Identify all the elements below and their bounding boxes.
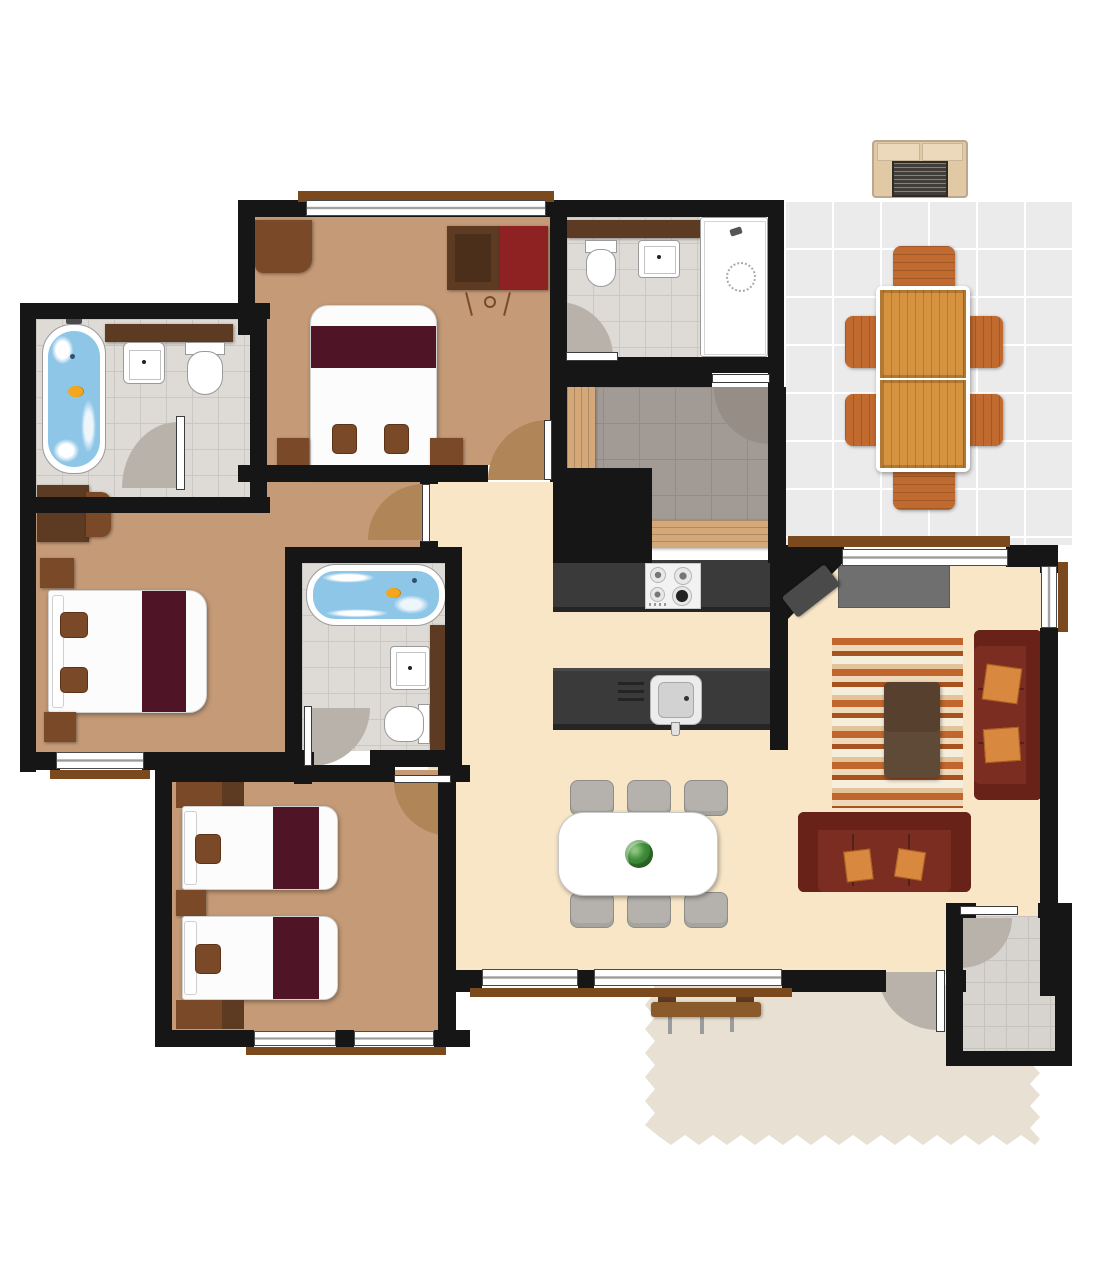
wall [20, 497, 36, 772]
dining-chair [627, 780, 671, 816]
tub-drain [70, 354, 75, 359]
ac-grille [892, 161, 948, 197]
wall [155, 765, 172, 1047]
outdoor-chair [893, 468, 955, 510]
drainboard-line [618, 698, 644, 701]
sink-drain [408, 666, 412, 670]
sofa-cushion [894, 848, 926, 881]
living-right-window [1041, 566, 1057, 628]
sofa-cushion [983, 727, 1021, 763]
ensuite-door-arc [312, 708, 370, 766]
wardrobe-inner [455, 234, 491, 282]
front-door [960, 906, 1018, 915]
kids-window-2 [354, 1031, 434, 1046]
bathroom-left-door [176, 416, 185, 490]
hob-burner [674, 567, 692, 585]
wall [420, 474, 438, 484]
wall [238, 465, 488, 482]
hob-burner-large [672, 586, 692, 606]
bed-blanket [273, 807, 319, 889]
plank-shelf-icon [567, 387, 595, 473]
toilet-icon [384, 706, 424, 742]
wall [155, 1030, 254, 1047]
bed-pillow [195, 834, 221, 864]
bed-pillow [384, 424, 409, 454]
bath-shelf [567, 220, 700, 238]
rubber-duck-icon [386, 588, 400, 598]
dining-chair [684, 892, 728, 928]
bench-leg [700, 1016, 704, 1034]
toilet-icon [187, 351, 223, 395]
sink-drain [657, 255, 661, 259]
wall [768, 200, 784, 387]
wall [336, 1030, 354, 1047]
plank-shelf-icon [650, 520, 772, 548]
window-sill [246, 1047, 446, 1055]
dining-chair [627, 892, 671, 928]
wall [438, 765, 456, 1047]
bench-seat-icon [651, 1002, 761, 1017]
wall [20, 303, 270, 319]
sofa-right-icon [974, 630, 1042, 800]
wall [20, 497, 270, 513]
plant-centerpiece-icon [625, 840, 653, 868]
wall [250, 465, 267, 513]
bath-shelf [105, 324, 233, 342]
master-window [56, 752, 144, 769]
wall [420, 541, 438, 550]
wall [946, 1051, 1072, 1066]
bathroom-top-door [566, 352, 618, 361]
nightstand-icon [40, 558, 74, 588]
bed-pillow [332, 424, 357, 454]
shower-drain [726, 262, 756, 292]
toilet-icon [586, 249, 616, 287]
outdoor-chair [967, 316, 1003, 368]
bath-water [48, 331, 100, 467]
outdoor-chair [893, 246, 955, 288]
living-top-window [842, 549, 1008, 566]
bed-pillow [195, 944, 221, 974]
armchair-icon [255, 220, 312, 273]
wall [770, 545, 788, 750]
wall [445, 547, 462, 767]
wall [20, 303, 36, 513]
wall [553, 468, 652, 563]
wall [782, 970, 886, 992]
faucet-icon [671, 722, 680, 736]
wall [155, 765, 395, 782]
nightstand-icon [44, 712, 76, 742]
window-sill [788, 536, 1010, 547]
ac-panel [922, 143, 963, 161]
window-sill [470, 988, 792, 997]
window-sill [50, 770, 150, 779]
nightstand-icon [176, 890, 206, 916]
bedroom-top-left-door [544, 420, 552, 480]
bed-blanket [142, 591, 186, 712]
wall [946, 903, 963, 1066]
kids-window-1 [254, 1031, 336, 1046]
outdoor-table-top [880, 290, 966, 378]
wall [285, 547, 302, 767]
bench-leg [730, 1016, 734, 1032]
floor-plan [0, 0, 1096, 1280]
living-bottom-window-1 [482, 969, 578, 986]
bed-pillow [60, 612, 88, 638]
tub-drain [412, 578, 417, 583]
nightstand-icon [176, 1000, 244, 1029]
sink-drain [142, 360, 146, 364]
drainboard-line [618, 690, 644, 693]
sofa-bottom-icon [798, 812, 971, 892]
master-door [422, 484, 430, 542]
wall [768, 387, 786, 563]
dining-chair [684, 780, 728, 816]
wall [550, 200, 567, 482]
wall [1055, 903, 1072, 1066]
deck-door [936, 970, 945, 1032]
hob-knobs [649, 603, 667, 606]
desk-icon [37, 485, 89, 542]
wardrobe-red-icon [500, 226, 548, 290]
hanger-icon [484, 296, 496, 308]
tv-cabinet-icon [838, 565, 950, 608]
coffee-table-icon [884, 682, 940, 778]
bath-water [313, 571, 439, 619]
window-sill [1058, 562, 1068, 632]
ensuite-door [304, 706, 312, 766]
sink-basin [129, 350, 161, 380]
outdoor-chair [967, 394, 1003, 446]
wall [566, 373, 712, 387]
bedroom-top-left-window [306, 200, 546, 216]
hob-burner [650, 587, 665, 602]
bench-leg [668, 1016, 672, 1034]
bed-pillow [60, 667, 88, 693]
ac-panel [877, 143, 920, 161]
drainboard-line [618, 682, 644, 685]
kids-door [394, 775, 451, 783]
wall [370, 750, 462, 767]
storage-door [712, 374, 770, 383]
sink-basin [658, 682, 694, 718]
bed-blanket [311, 326, 436, 368]
sofa-cushion [982, 664, 1023, 705]
rubber-duck-icon [68, 386, 83, 397]
bed-blanket [273, 917, 319, 999]
outdoor-table-top [880, 380, 966, 468]
sink-drain [684, 696, 689, 701]
dining-chair [570, 780, 614, 816]
living-bottom-window-2 [594, 969, 782, 986]
nightstand-icon [176, 779, 244, 808]
hob-burner [650, 567, 666, 583]
sink-basin [644, 246, 676, 274]
sofa-cushion [843, 848, 874, 882]
dining-chair [570, 892, 614, 928]
